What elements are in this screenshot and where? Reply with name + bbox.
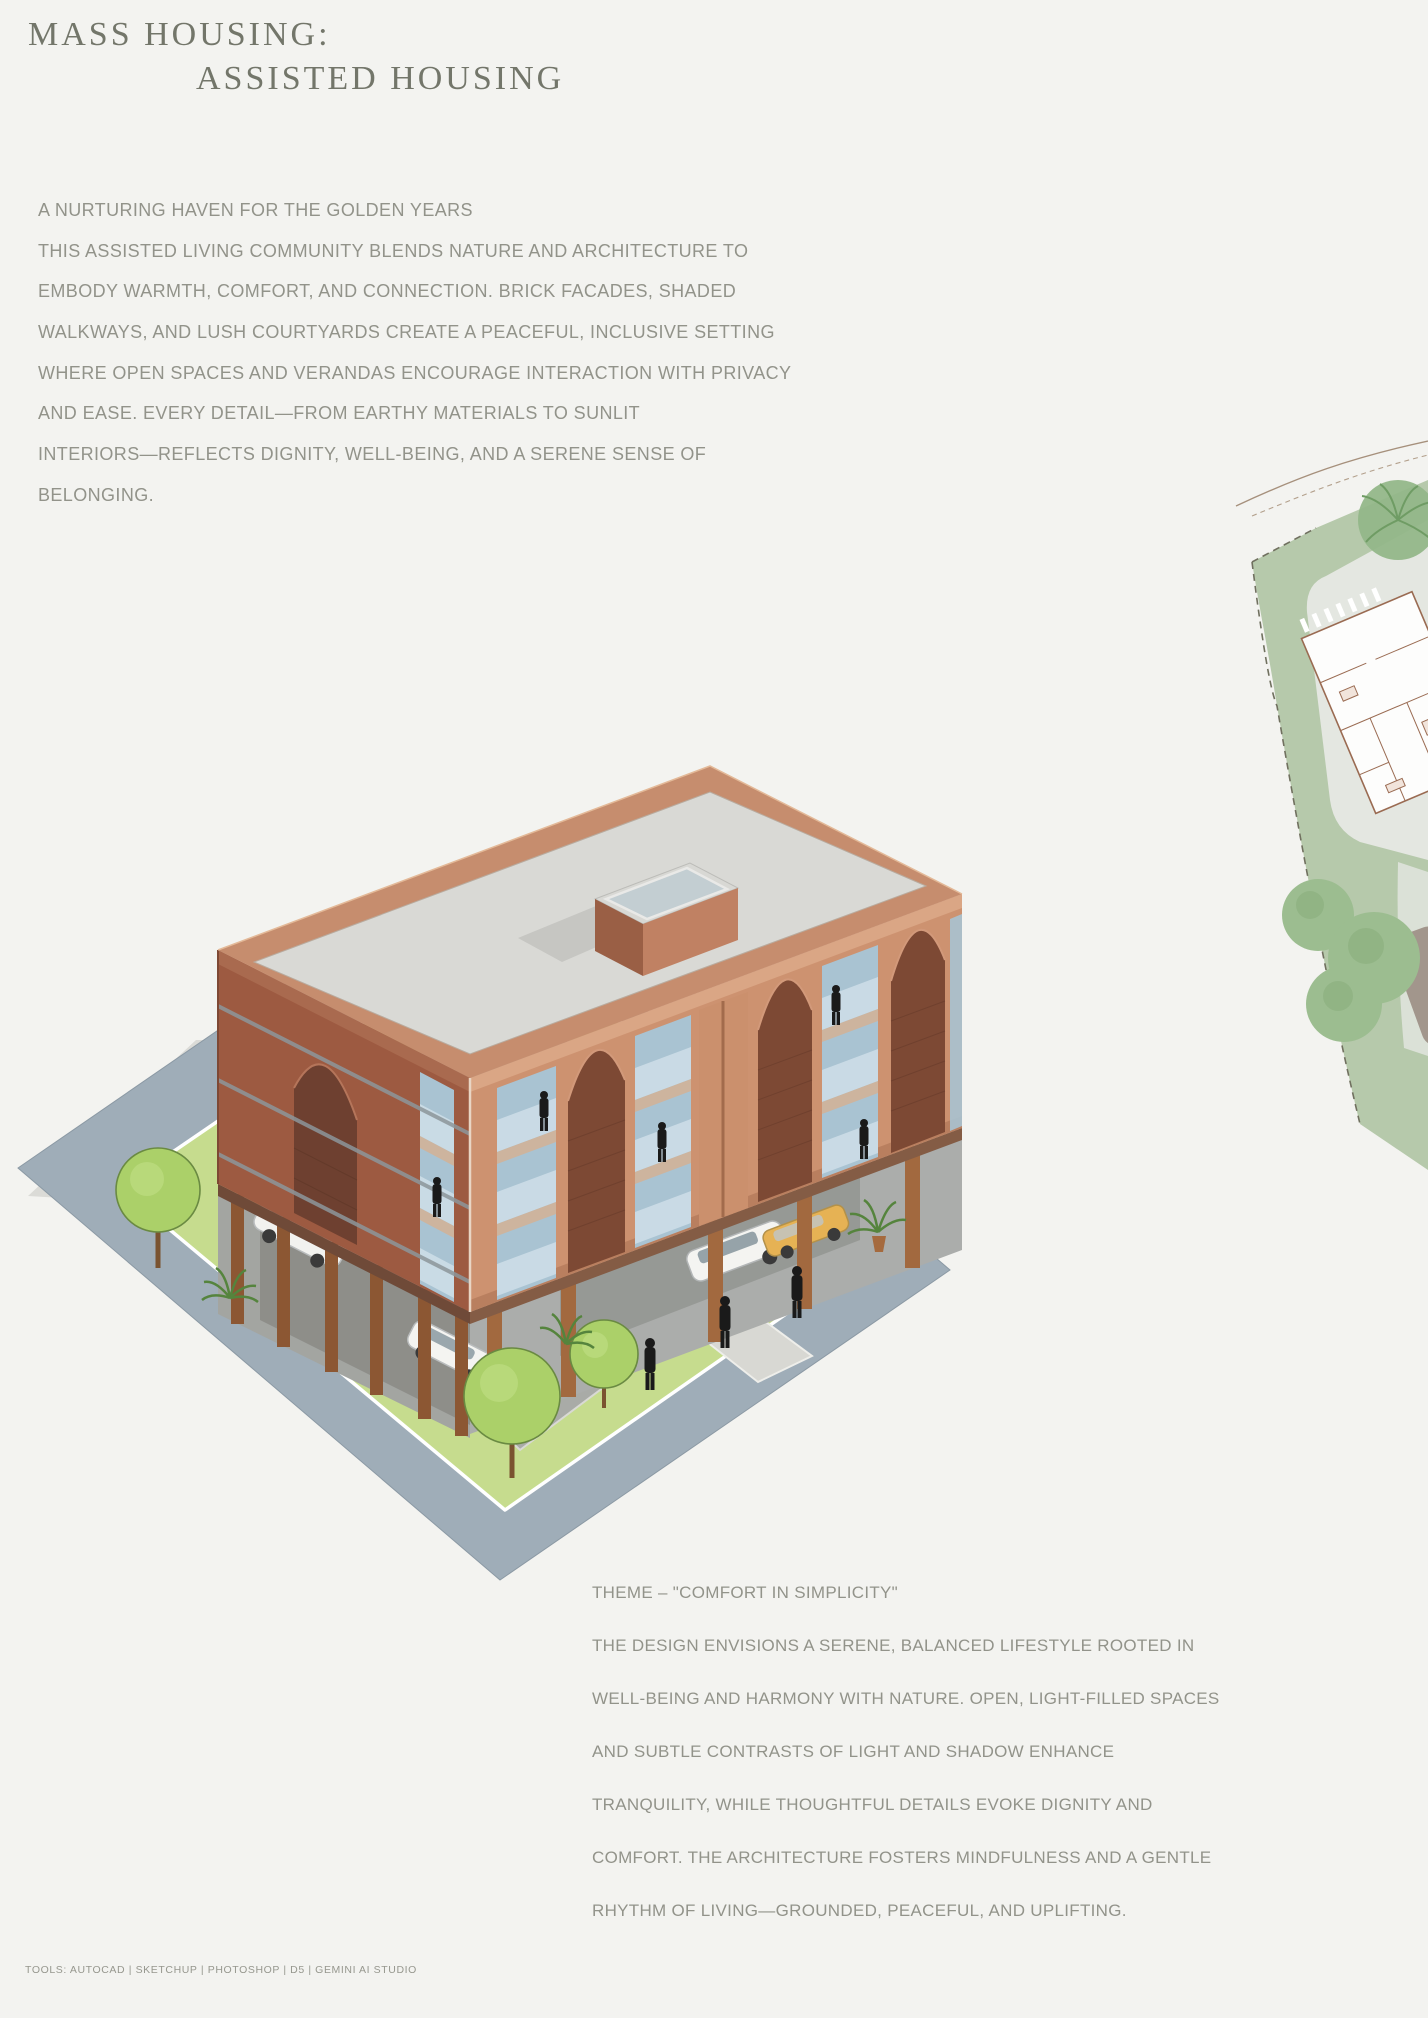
text-line: RHYTHM OF LIVING—GROUNDED, PEACEFUL, AND… — [592, 1884, 1220, 1937]
window-bay — [822, 945, 878, 1178]
arch-panel — [568, 1050, 625, 1273]
text-line: WALKWAYS, AND LUSH COURTYARDS CREATE A P… — [38, 312, 791, 353]
text-line: AND SUBTLE CONTRASTS OF LIGHT AND SHADOW… — [592, 1725, 1220, 1778]
page-title-line2: ASSISTED HOUSING — [196, 60, 564, 98]
text-line: WELL-BEING AND HARMONY WITH NATURE. OPEN… — [592, 1672, 1220, 1725]
site-plan-fragment — [1140, 360, 1428, 1170]
text-line: TRANQUILITY, WHILE THOUGHTFUL DETAILS EV… — [592, 1778, 1220, 1831]
text-line: THE DESIGN ENVISIONS A SERENE, BALANCED … — [592, 1619, 1220, 1672]
page-title-line1: MASS HOUSING: — [28, 16, 564, 54]
text-line: THEME – "COMFORT IN SIMPLICITY" — [592, 1566, 1220, 1619]
text-line: THIS ASSISTED LIVING COMMUNITY BLENDS NA… — [38, 231, 791, 272]
tools-credit-line: TOOLS: AUTOCAD | SKETCHUP | PHOTOSHOP | … — [25, 1964, 417, 1976]
text-line: INTERIORS—REFLECTS DIGNITY, WELL-BEING, … — [38, 434, 791, 475]
arch-panel — [758, 979, 812, 1202]
theme-paragraph: THEME – "COMFORT IN SIMPLICITY" THE DESI… — [592, 1566, 1220, 1937]
text-line: A NURTURING HAVEN FOR THE GOLDEN YEARS — [38, 190, 791, 231]
portfolio-page: MASS HOUSING: ASSISTED HOUSING A NURTURI… — [0, 0, 1428, 2018]
page-title: MASS HOUSING: ASSISTED HOUSING — [28, 16, 564, 98]
intro-paragraph: A NURTURING HAVEN FOR THE GOLDEN YEARS T… — [38, 190, 791, 516]
text-line: AND EASE. EVERY DETAIL—FROM EARTHY MATER… — [38, 393, 791, 434]
text-line: COMFORT. THE ARCHITECTURE FOSTERS MINDFU… — [592, 1831, 1220, 1884]
building-axonometric-illustration — [0, 560, 980, 1620]
arch-panel — [891, 930, 945, 1153]
stair-tower-pier — [699, 992, 748, 1226]
text-line: EMBODY WARMTH, COMFORT, AND CONNECTION. … — [38, 271, 791, 312]
text-line: BELONGING. — [38, 475, 791, 516]
text-line: WHERE OPEN SPACES AND VERANDAS ENCOURAGE… — [38, 353, 791, 394]
